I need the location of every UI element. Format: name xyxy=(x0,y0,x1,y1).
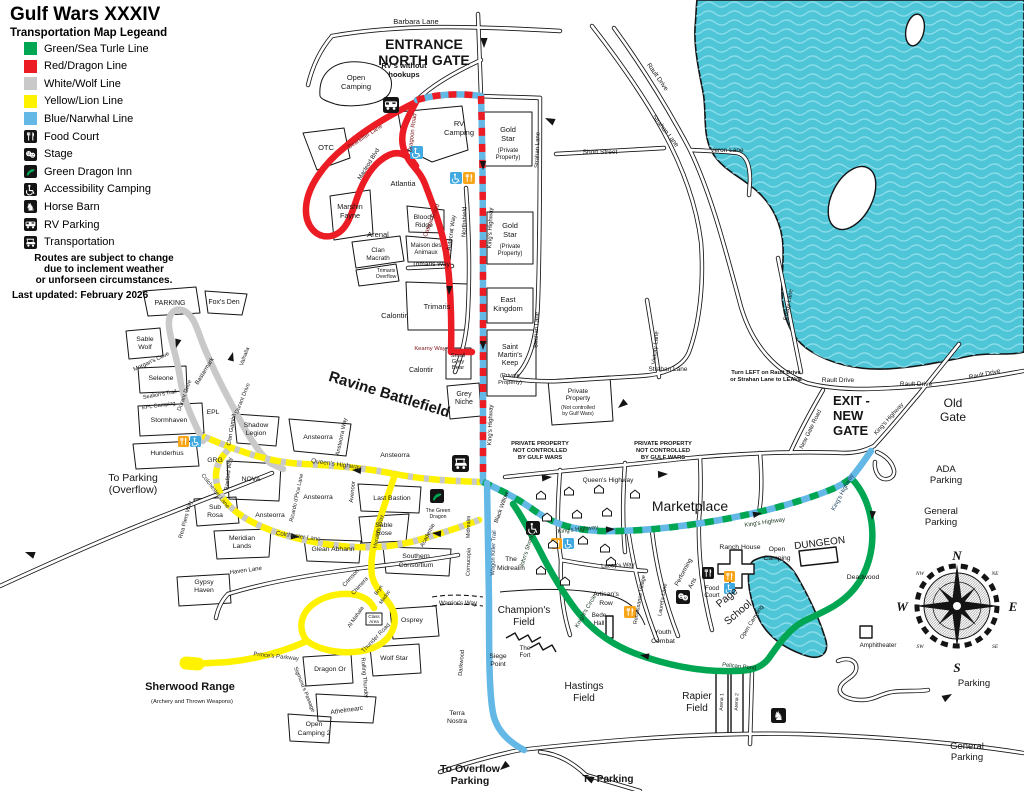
map-label: EPL xyxy=(207,409,220,416)
map-label: OTC xyxy=(318,143,334,152)
map-label: GATE xyxy=(833,423,868,438)
legend-item-rv-parking: RV Parking xyxy=(24,217,266,233)
map-label: Camping xyxy=(763,555,790,562)
map-label: (Private xyxy=(500,373,520,379)
map-label: Parking xyxy=(930,475,962,486)
legend-subtitle: Transportation Map Legeand xyxy=(10,27,266,39)
map-label: Martin's xyxy=(498,352,523,359)
accessibility-icon xyxy=(563,538,574,549)
map-label: Clan xyxy=(371,247,385,254)
map-label: Grey xyxy=(456,391,472,398)
map-label: BY GULF WARS xyxy=(518,455,562,461)
map-label: Midrealm xyxy=(466,515,473,538)
map-label: E xyxy=(1008,599,1018,614)
map-label: PRIVATE PROPERTY xyxy=(634,441,692,447)
map-label: Saint xyxy=(502,344,518,351)
map-label: Open xyxy=(306,721,323,728)
map-label: Siege xyxy=(489,653,507,660)
stage-icon xyxy=(24,148,37,161)
map-label: Arena 1 xyxy=(719,693,726,711)
map-label: S xyxy=(953,660,960,675)
rv-parking-icon xyxy=(24,218,37,231)
horse-barn-icon xyxy=(771,708,786,723)
legend-item-food-court: Food Court xyxy=(24,129,266,145)
map-label: Ansteorra xyxy=(303,494,333,501)
map-label: Property) xyxy=(496,155,521,161)
food-court-icon xyxy=(24,130,37,143)
map-label: NOVA xyxy=(242,476,261,483)
map-label: Macrath xyxy=(366,255,390,262)
legend-updated: Last updated: February 2026 xyxy=(12,290,266,301)
map-label: Niche xyxy=(455,399,473,406)
red-line-swatch xyxy=(24,60,37,73)
map-label: (Private xyxy=(500,244,521,250)
blue-line-swatch xyxy=(24,112,37,125)
map-label: Northshield xyxy=(461,207,468,238)
page-title: Gulf Wars XXXIV xyxy=(10,4,266,26)
map-label: Legion xyxy=(246,430,267,437)
legend-item-horse-barn: Horse Barn xyxy=(24,199,266,215)
map-label: BY GULF WARS xyxy=(641,455,685,461)
map-label: Wolf xyxy=(138,344,152,351)
map-label: EXIT - xyxy=(833,393,870,408)
map-label: by Gulf Wars) xyxy=(562,411,594,417)
map-label: SW xyxy=(916,644,924,650)
map-label: Short Street xyxy=(583,149,618,156)
legend-line-white: White/Wolf Line xyxy=(24,76,266,92)
map-label: Hastings xyxy=(565,681,604,692)
map-label: The xyxy=(505,556,517,563)
map-label: Fayne xyxy=(340,211,360,220)
map-label: Seleone xyxy=(149,375,174,382)
map-label: The xyxy=(520,645,531,652)
map-label: NW xyxy=(915,571,925,577)
map-label: Terra xyxy=(449,710,465,717)
map-label: Gypsy xyxy=(194,579,214,586)
map-label: Haven xyxy=(194,587,214,594)
green-dragon-icon xyxy=(24,165,37,178)
map-label: Calontir xyxy=(381,311,407,320)
map-label: W xyxy=(896,599,909,614)
map-label: Kearny Way xyxy=(414,346,445,352)
map-label: Rosa xyxy=(207,512,223,519)
map-label: PARKING xyxy=(155,300,186,307)
map-label: Veron Lane xyxy=(710,147,744,154)
map-label: Strahan Lane xyxy=(533,311,540,348)
map-label: Arena 2 xyxy=(734,693,741,711)
food-court-icon xyxy=(463,172,475,184)
map-label: Old xyxy=(944,396,963,410)
map-label: Sub xyxy=(209,504,221,511)
map-label: Bede xyxy=(592,612,607,619)
map-label: Field xyxy=(573,693,595,704)
legend-line-green: Green/Sea Turle Line xyxy=(24,41,266,57)
map-label: Parking xyxy=(451,775,490,787)
legend-notes: Routes are subject to change due to incl… xyxy=(14,254,194,286)
map-label: Gold xyxy=(500,125,516,134)
map-label: Sable xyxy=(136,336,154,343)
map-label: Atlantia xyxy=(390,179,416,188)
map-label: Osprey xyxy=(401,617,424,624)
map-label: Marshin xyxy=(337,202,363,211)
map-label: Area xyxy=(369,619,379,624)
map-label: Gold xyxy=(502,221,518,230)
map-label: Trimaris xyxy=(424,302,451,311)
map-label: NEW xyxy=(833,408,864,423)
map-label: Deadwood xyxy=(847,574,880,581)
map-label: Overflow xyxy=(376,274,397,280)
map-label: Nostra xyxy=(447,718,467,725)
map-label: Animaux xyxy=(414,250,437,256)
map-label: Rault Drive xyxy=(900,381,933,388)
map-label: Meridian xyxy=(229,535,255,542)
map-label: Row xyxy=(599,600,613,607)
map-label: Maison des xyxy=(411,243,442,249)
food-court-icon xyxy=(702,567,714,579)
map-label: Star xyxy=(501,134,515,143)
map-label: Youth xyxy=(654,629,671,636)
map-label: Ranch House xyxy=(719,544,760,551)
map-label: Arenal xyxy=(367,230,389,239)
map-label: Bear xyxy=(452,365,464,371)
map-label: General xyxy=(924,506,958,517)
map-label: Lands xyxy=(233,543,252,550)
map-label: Star xyxy=(503,230,517,239)
accessibility-icon xyxy=(190,436,201,447)
rv-parking-icon xyxy=(383,97,399,113)
map-label: Camping xyxy=(341,82,371,91)
map-label: Warrior's Way xyxy=(439,600,478,607)
map-label: Point xyxy=(490,661,506,668)
map-label: Open xyxy=(769,546,786,553)
legend-item-stage: Stage xyxy=(24,146,266,162)
map-label: Property xyxy=(566,395,591,402)
map-label: Dragon xyxy=(429,514,446,520)
green-dragon-icon xyxy=(430,489,444,503)
food-court-icon xyxy=(724,571,735,582)
map-label: Ansteorra xyxy=(303,434,333,441)
legend: Gulf Wars XXXIV Transportation Map Legea… xyxy=(10,4,266,301)
map-label: Open xyxy=(347,73,365,82)
map-label: Field xyxy=(686,703,708,714)
stage-icon xyxy=(676,590,690,604)
map-label: Sherwood Range xyxy=(145,681,235,693)
map-label: Parking xyxy=(958,678,990,689)
map-label: Southern xyxy=(402,553,430,560)
map-label: Ansteorra xyxy=(255,512,285,519)
legend-item-transportation: Transportation xyxy=(24,234,266,250)
accessibility-icon xyxy=(450,172,462,184)
map-label: Private xyxy=(568,388,589,395)
legend-item-accessibility-camping: Accessibility Camping xyxy=(24,181,266,197)
map-label: Parking xyxy=(951,752,983,763)
white-line-swatch xyxy=(24,77,37,90)
map-label: To Parking xyxy=(583,774,634,785)
map-label: Property) xyxy=(498,251,523,257)
map-label: Barbara Lane xyxy=(393,17,438,26)
legend-item-green-dragon-inn: Green Dragon Inn xyxy=(24,164,266,180)
map-label: hookups xyxy=(388,70,419,79)
map-label: Dragon Or xyxy=(314,666,346,673)
map-label: Property) xyxy=(498,380,522,386)
map-label: Food xyxy=(705,585,720,592)
map-label: Trimaris Way xyxy=(412,261,451,268)
map-label: Camping 2 xyxy=(298,730,331,737)
map-label: Field xyxy=(513,617,535,628)
map-label: NOT CONTROLLED xyxy=(513,448,567,454)
map-label: Parking xyxy=(925,517,957,528)
map-label: Hall xyxy=(594,620,605,627)
map-label: Strahan Lane xyxy=(534,131,541,168)
map-label: Calontir xyxy=(409,367,434,374)
map-label: N xyxy=(951,548,962,563)
map-label: NE xyxy=(990,571,999,577)
map-label: PRIVATE PROPERTY xyxy=(511,441,569,447)
map-label: Wolf Star xyxy=(380,655,409,662)
gulf-wars-map-page: ♞ xyxy=(0,0,1024,791)
transportation-icon xyxy=(24,236,37,249)
map-label: Amphitheater xyxy=(860,642,897,649)
map-label: Stormhaven xyxy=(151,417,188,424)
legend-line-red: Red/Dragon Line xyxy=(24,58,266,74)
map-label: RV xyxy=(454,119,464,128)
map-label: Keep xyxy=(502,360,518,367)
map-label: Cornucopia xyxy=(466,547,473,576)
map-label: Rapier xyxy=(682,691,712,702)
map-label: East xyxy=(500,295,516,304)
map-label: Marketplace xyxy=(652,498,728,514)
map-label: Turn LEFT on Rault Drive xyxy=(731,370,801,376)
map-label: NOT CONTROLLED xyxy=(636,448,690,454)
map-label: Combat xyxy=(651,638,675,645)
map-label: Queen's Highway xyxy=(583,477,634,484)
map-label: Consortium xyxy=(399,562,434,569)
map-label: RV s without xyxy=(381,61,427,70)
map-label: (Private xyxy=(498,148,519,154)
map-label: Last Bastion xyxy=(373,495,411,502)
green-line-swatch xyxy=(24,42,37,55)
map-label: Hunderhus xyxy=(150,450,184,457)
legend-line-yellow: Yellow/Lion Line xyxy=(24,93,266,109)
horse-barn-icon xyxy=(24,200,37,213)
map-label: Rault Drive xyxy=(822,377,855,384)
map-label: General xyxy=(950,741,984,752)
yellow-line-swatch xyxy=(24,95,37,108)
transportation-icon xyxy=(452,455,469,472)
map-label: (Archery and Thrown Weapons) xyxy=(151,699,233,705)
map-label: (Overflow) xyxy=(109,484,157,496)
map-label: Strahan Lane xyxy=(648,366,687,373)
map-label: To Overflow xyxy=(440,763,501,775)
map-label: or Strahan Lane to LEAVE xyxy=(730,377,802,383)
map-label: To Parking xyxy=(108,472,158,484)
map-label: Kingdom xyxy=(493,304,523,313)
map-label: Glean Abhann xyxy=(311,546,354,553)
accessibility-icon xyxy=(24,183,37,196)
map-label: ENTRANCE xyxy=(385,36,463,52)
map-label: SE xyxy=(992,644,999,650)
map-label: Champion's xyxy=(498,605,551,616)
map-label: Camping xyxy=(444,128,474,137)
food-court-icon xyxy=(178,436,189,447)
map-label: Gate xyxy=(940,410,966,424)
map-label: ADA xyxy=(936,464,956,475)
map-label: GRG xyxy=(207,457,222,464)
map-label: Fort xyxy=(519,652,530,659)
map-label: Shadow xyxy=(244,422,269,429)
map-label: Ansteorra xyxy=(380,452,410,459)
legend-line-blue: Blue/Narwhal Line xyxy=(24,111,266,127)
